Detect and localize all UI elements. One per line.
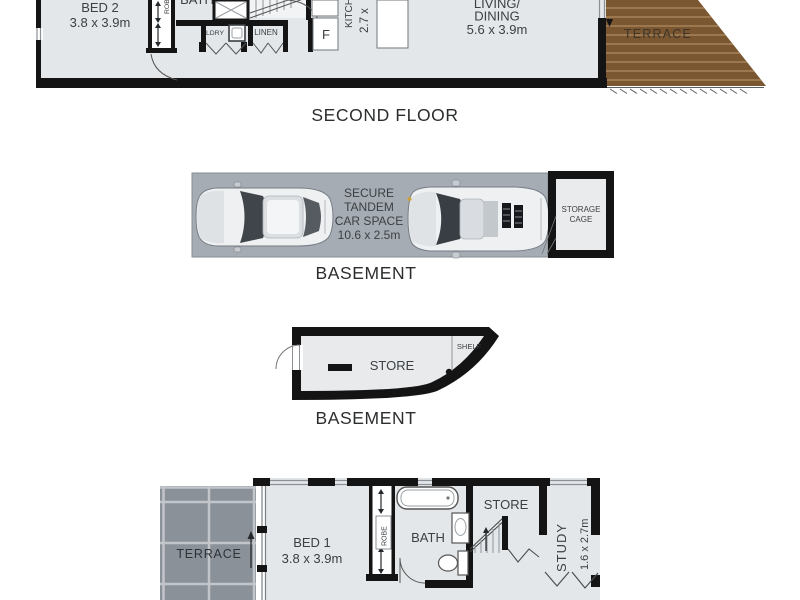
laundry-label: LDRY <box>206 30 224 37</box>
second-floor-plan: TERRACE <box>34 0 770 94</box>
linen-label: LINEN <box>254 28 278 37</box>
bed2-label: BED 2 <box>81 0 119 15</box>
fridge-label: F <box>322 27 330 42</box>
bathtub-icon <box>397 487 458 509</box>
terrace1-label: TERRACE <box>176 547 241 561</box>
wood-deck <box>606 0 766 86</box>
basement-store-caption: BASEMENT <box>315 408 416 428</box>
column-dot-icon <box>446 369 452 375</box>
terrace-label: TERRACE <box>624 27 692 41</box>
bed1-label: BED 1 <box>293 535 331 550</box>
store-room-label: STORE <box>370 358 415 373</box>
fridge: F <box>312 0 338 50</box>
floorplan-page: TERRACE <box>0 0 800 600</box>
bed2-dims: 3.8 x 3.9m <box>70 15 131 30</box>
bed2-window <box>34 28 43 40</box>
second-floor-caption: SECOND FLOOR <box>311 105 458 125</box>
basement-garage-caption: BASEMENT <box>315 263 416 283</box>
kitchen-dims: 2.7 x <box>359 8 371 33</box>
study-label: STUDY <box>554 523 569 572</box>
store1-label: STORE <box>484 497 529 512</box>
robe-closet: ROBE <box>152 0 171 48</box>
shower <box>214 0 248 20</box>
storage-cage-line2: CAGE <box>570 215 593 224</box>
first-floor-plan: TERRACE <box>160 478 600 600</box>
car-space-text: SECURE TANDEM CAR SPACE 10.6 x 2.5m <box>335 186 403 242</box>
car-space-dims: 10.6 x 2.5m <box>338 228 401 242</box>
car-space-line1: SECURE <box>344 186 394 200</box>
second-floor-terrace: TERRACE <box>600 0 770 94</box>
car-sedan-icon <box>196 182 333 252</box>
store-bench-icon <box>328 364 352 371</box>
robe1-label: ROBE <box>382 526 389 546</box>
store-entry-door <box>276 345 303 370</box>
living-dims: 5.6 x 3.9m <box>467 22 528 37</box>
bath1-label: BATH <box>411 530 445 545</box>
storage-cage: STORAGE CAGE <box>542 171 614 258</box>
kitchen-label: KITCHEN <box>344 0 355 28</box>
storage-cage-line1: STORAGE <box>562 205 601 214</box>
deck-edge-hatch <box>606 88 764 94</box>
tile-grout <box>160 486 256 600</box>
car-space-line2: TANDEM <box>344 200 394 214</box>
car-space-line3: CAR SPACE <box>335 214 403 228</box>
bed1-window-wall <box>256 486 267 600</box>
basement-store-plan: STORE SHELF <box>276 327 499 400</box>
shelf-label: SHELF <box>457 342 482 351</box>
car-sports-icon <box>408 180 550 258</box>
robe-label: ROBE <box>164 0 171 14</box>
first-floor-terrace: TERRACE <box>160 486 256 600</box>
sink-icon <box>452 513 469 543</box>
basement-garage-plan: SECURE TANDEM CAR SPACE 10.6 x 2.5m STOR… <box>192 171 614 258</box>
kitchen-bench <box>377 0 408 48</box>
laundry-sink-icon <box>229 25 245 41</box>
bath2-label: BATH <box>180 0 214 7</box>
floorplan-canvas: TERRACE <box>0 0 800 600</box>
bed1-dims: 3.8 x 3.9m <box>282 551 343 566</box>
study-dims: 1.6 x 2.7m <box>579 519 591 570</box>
robe1-closet: ROBE <box>369 486 395 574</box>
